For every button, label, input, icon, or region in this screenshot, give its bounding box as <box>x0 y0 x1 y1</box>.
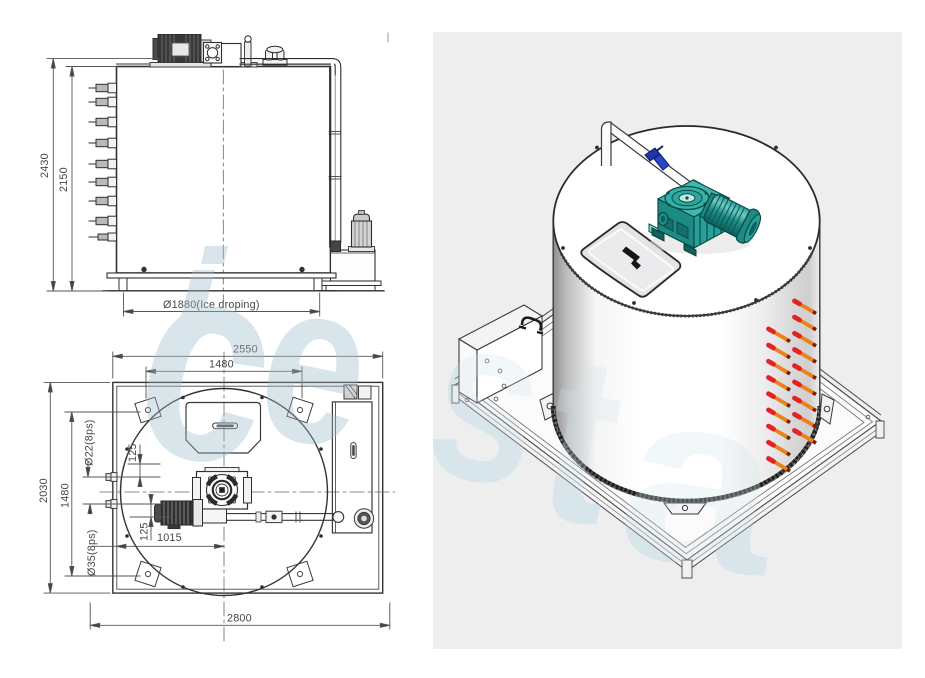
svg-text:125: 125 <box>139 522 151 541</box>
svg-text:2800: 2800 <box>227 613 252 625</box>
svg-text:Ø35(8ps): Ø35(8ps) <box>86 529 98 576</box>
svg-text:Ø22(8ps): Ø22(8ps) <box>84 419 96 466</box>
svg-text:2150: 2150 <box>58 167 70 192</box>
svg-text:1015: 1015 <box>157 532 182 544</box>
svg-text:2030: 2030 <box>38 478 50 503</box>
svg-text:2430: 2430 <box>39 153 51 178</box>
svg-text:1480: 1480 <box>60 483 72 508</box>
